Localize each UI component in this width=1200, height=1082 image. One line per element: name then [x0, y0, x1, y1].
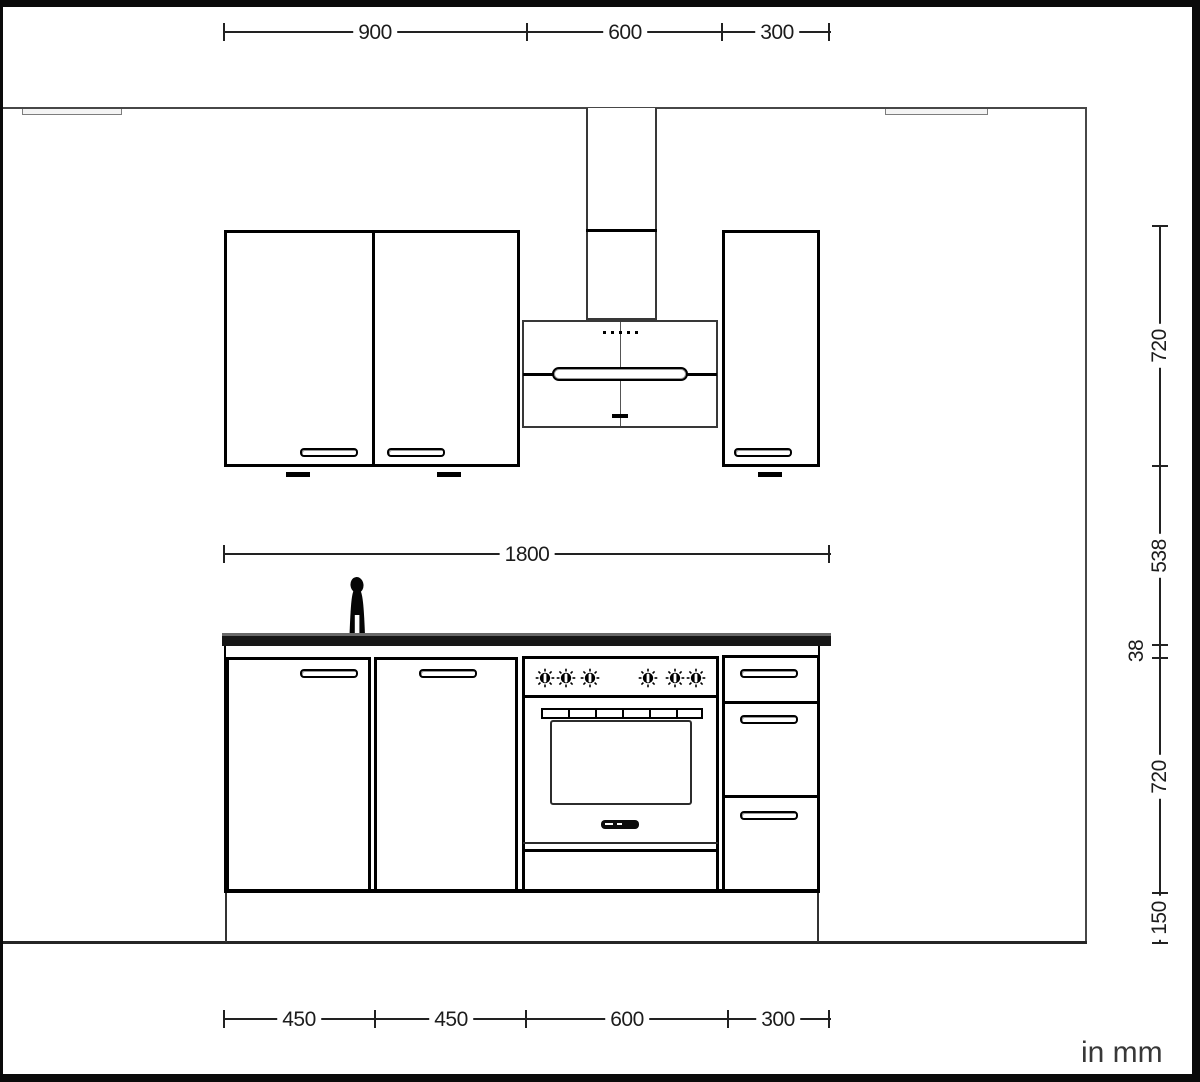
plinth-side-left [225, 892, 227, 942]
wall-notch-right [885, 109, 988, 115]
countertop [222, 633, 831, 646]
dimension-label: 450 [429, 1010, 473, 1030]
hood-button-icon [627, 331, 630, 334]
dimension-tick [721, 23, 723, 41]
drawer-divider [725, 795, 817, 798]
door-handle [300, 669, 358, 678]
under-cabinet-light-icon [758, 472, 782, 477]
dimension-label: 600 [603, 23, 647, 43]
door-handle [734, 448, 792, 457]
door-handle [387, 448, 445, 457]
dimension-tick [828, 1010, 830, 1028]
under-cabinet-light-icon [286, 472, 310, 477]
door-handle [419, 669, 477, 678]
burner-knob-icon [556, 668, 576, 688]
frame-top [0, 0, 1200, 7]
wall-cabinet-right [722, 230, 820, 467]
drawer-handle [740, 811, 798, 820]
dimension-tick [223, 23, 225, 41]
dimension-tick [1152, 942, 1168, 944]
hood-handle [552, 367, 688, 381]
dimension-label: 1800 [500, 545, 555, 565]
dimension-label: 600 [605, 1010, 649, 1030]
wall-cabinet-left [224, 230, 520, 467]
floor-line [3, 941, 1087, 944]
control-panel-line [523, 695, 718, 698]
hood-light-icon [612, 414, 628, 418]
frame-right [1192, 0, 1200, 1082]
oven-brand-badge [601, 820, 639, 829]
oven-window [550, 720, 692, 805]
drawer-handle [740, 715, 798, 724]
dimension-tick [727, 1010, 729, 1028]
dimension-label: 150 [1150, 896, 1170, 940]
dimension-label: 720 [1150, 324, 1170, 368]
faucet-icon [341, 577, 373, 637]
dimension-tick [1152, 225, 1168, 227]
drawer-unit [722, 655, 820, 892]
dimension-tick [223, 1010, 225, 1028]
dimension-tick [1152, 657, 1168, 659]
dimension-label: 300 [756, 1010, 800, 1030]
right-wall-line [1085, 107, 1087, 943]
hood-button-icon [635, 331, 638, 334]
dimension-tick [1152, 465, 1168, 467]
oven-door-bottom-line [523, 842, 718, 844]
dimension-tick [828, 545, 830, 563]
plinth-side-right [817, 892, 819, 942]
burner-knob-icon [580, 668, 600, 688]
dimension-tick [525, 1010, 527, 1028]
hood-button-icon [619, 331, 622, 334]
chimney-joint-line [586, 229, 657, 232]
under-cabinet-light-icon [437, 472, 461, 477]
dimension-tick [1152, 644, 1168, 646]
drawer-handle [740, 669, 798, 678]
hood-chimney [586, 108, 657, 320]
dimension-tick [526, 23, 528, 41]
dimension-label: 300 [755, 23, 799, 43]
burner-knob-icon [535, 668, 555, 688]
frame-bottom [0, 1074, 1200, 1082]
dimension-label: 900 [353, 23, 397, 43]
burner-knob-icon [686, 668, 706, 688]
wall-notch-left [22, 109, 122, 115]
dimension-tick [1152, 892, 1168, 894]
oven-knob-icon [638, 668, 658, 688]
door-handle [300, 448, 358, 457]
burner-knob-icon [665, 668, 685, 688]
dimension-tick [828, 23, 830, 41]
dimension-tick [223, 545, 225, 563]
base-door-2 [374, 657, 518, 892]
unit-note: in mm [1081, 1038, 1163, 1068]
dimension-label: 538 [1150, 534, 1170, 578]
storage-drawer-line [523, 849, 718, 852]
door-divider [372, 233, 375, 464]
dimension-label: 38 [1127, 635, 1147, 667]
oven-door-handle [541, 708, 703, 719]
kitchen-elevation-drawing: 900 600 300 1800 [0, 0, 1200, 1082]
hood-button-icon [611, 331, 614, 334]
dimension-label: 450 [277, 1010, 321, 1030]
dimension-tick [374, 1010, 376, 1028]
drawer-divider [725, 701, 817, 704]
dimension-label: 720 [1150, 755, 1170, 799]
frame-left [0, 0, 3, 1082]
base-door-1 [226, 657, 371, 892]
hood-button-icon [603, 331, 606, 334]
